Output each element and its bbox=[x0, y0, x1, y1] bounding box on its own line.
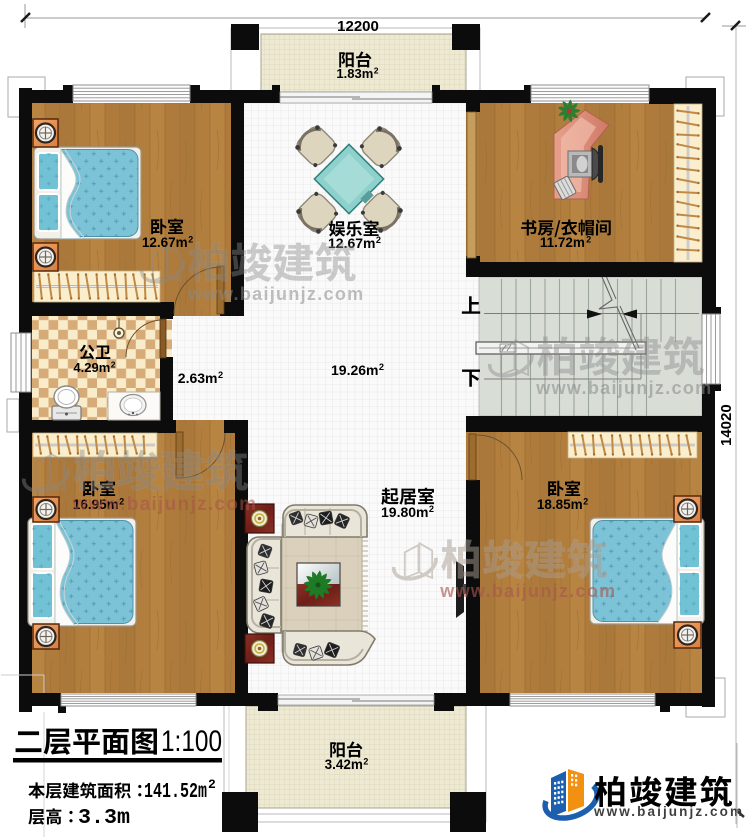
svg-text:1.83m: 1.83m bbox=[336, 66, 373, 81]
svg-text:2: 2 bbox=[586, 234, 591, 244]
svg-text:www.baijunjz.com: www.baijunjz.com bbox=[72, 494, 258, 515]
svg-text:141.52m: 141.52m bbox=[144, 781, 207, 804]
svg-text:2: 2 bbox=[429, 504, 434, 514]
svg-text:1:100: 1:100 bbox=[161, 725, 222, 758]
svg-text:2: 2 bbox=[374, 66, 379, 76]
svg-text:4.29m: 4.29m bbox=[73, 360, 110, 375]
svg-text:14020: 14020 bbox=[718, 404, 735, 446]
svg-text:2: 2 bbox=[376, 235, 381, 245]
svg-text:www.baijunjz.com: www.baijunjz.com bbox=[593, 804, 744, 819]
svg-text:2: 2 bbox=[188, 234, 193, 244]
svg-text:19.26m: 19.26m bbox=[331, 362, 378, 378]
svg-text:www.baijunjz.com: www.baijunjz.com bbox=[535, 378, 712, 398]
svg-text:11.72m: 11.72m bbox=[540, 235, 585, 250]
svg-text:2: 2 bbox=[111, 359, 116, 369]
svg-text:2: 2 bbox=[379, 362, 384, 372]
svg-text:3.42m: 3.42m bbox=[325, 757, 363, 772]
svg-text:12.67m: 12.67m bbox=[142, 235, 188, 250]
svg-text:www.baijunjz.com: www.baijunjz.com bbox=[187, 284, 364, 304]
svg-text:www.baijunjz.com: www.baijunjz.com bbox=[439, 581, 616, 601]
svg-text:18.85m: 18.85m bbox=[537, 497, 583, 512]
svg-text:2: 2 bbox=[583, 496, 588, 506]
svg-text:12200: 12200 bbox=[337, 18, 379, 35]
svg-text:2: 2 bbox=[218, 370, 223, 380]
svg-text:19.80m: 19.80m bbox=[381, 504, 428, 520]
svg-text:2: 2 bbox=[208, 777, 216, 792]
svg-text:2.63m: 2.63m bbox=[178, 370, 218, 386]
svg-text:3.3m: 3.3m bbox=[78, 807, 130, 830]
svg-text:2: 2 bbox=[363, 756, 368, 766]
